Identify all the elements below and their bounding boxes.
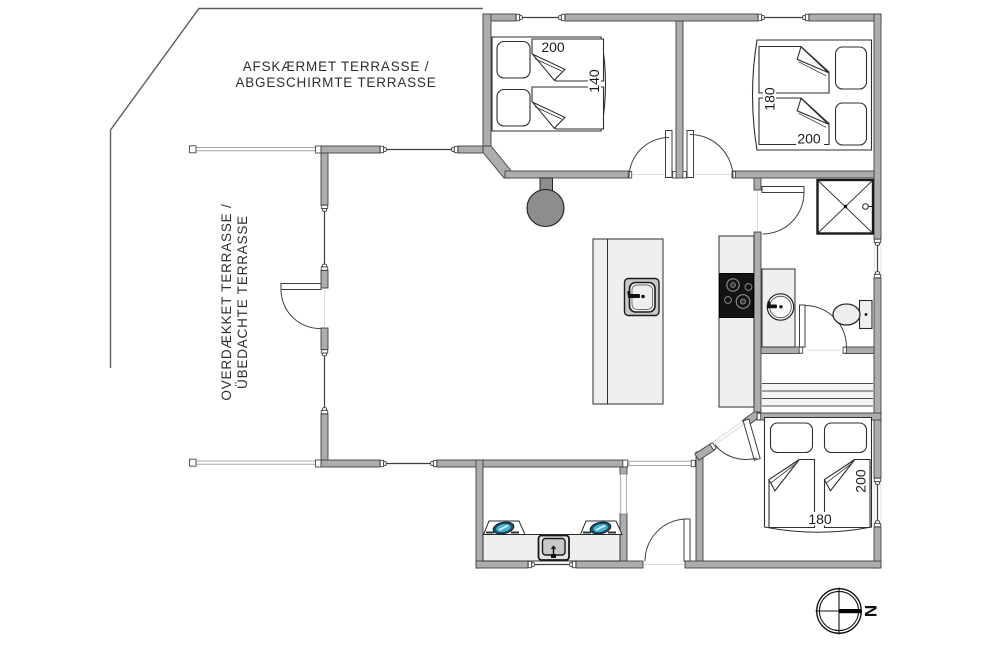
svg-text:AFSKÆRMET TERRASSE /: AFSKÆRMET TERRASSE / xyxy=(243,59,430,74)
svg-text:N: N xyxy=(861,605,880,617)
svg-text:200: 200 xyxy=(541,39,565,55)
svg-text:OVERDÆKKET TERRASSE /: OVERDÆKKET TERRASSE / xyxy=(219,203,234,400)
svg-text:ÜBEDACHTE TERRASSE: ÜBEDACHTE TERRASSE xyxy=(235,215,250,389)
svg-text:200: 200 xyxy=(797,131,821,147)
svg-text:140: 140 xyxy=(586,69,602,93)
svg-text:ABGESCHIRMTE TERRASSE: ABGESCHIRMTE TERRASSE xyxy=(235,75,436,90)
svg-text:180: 180 xyxy=(808,511,832,527)
svg-text:200: 200 xyxy=(853,469,869,493)
svg-text:180: 180 xyxy=(762,87,778,111)
